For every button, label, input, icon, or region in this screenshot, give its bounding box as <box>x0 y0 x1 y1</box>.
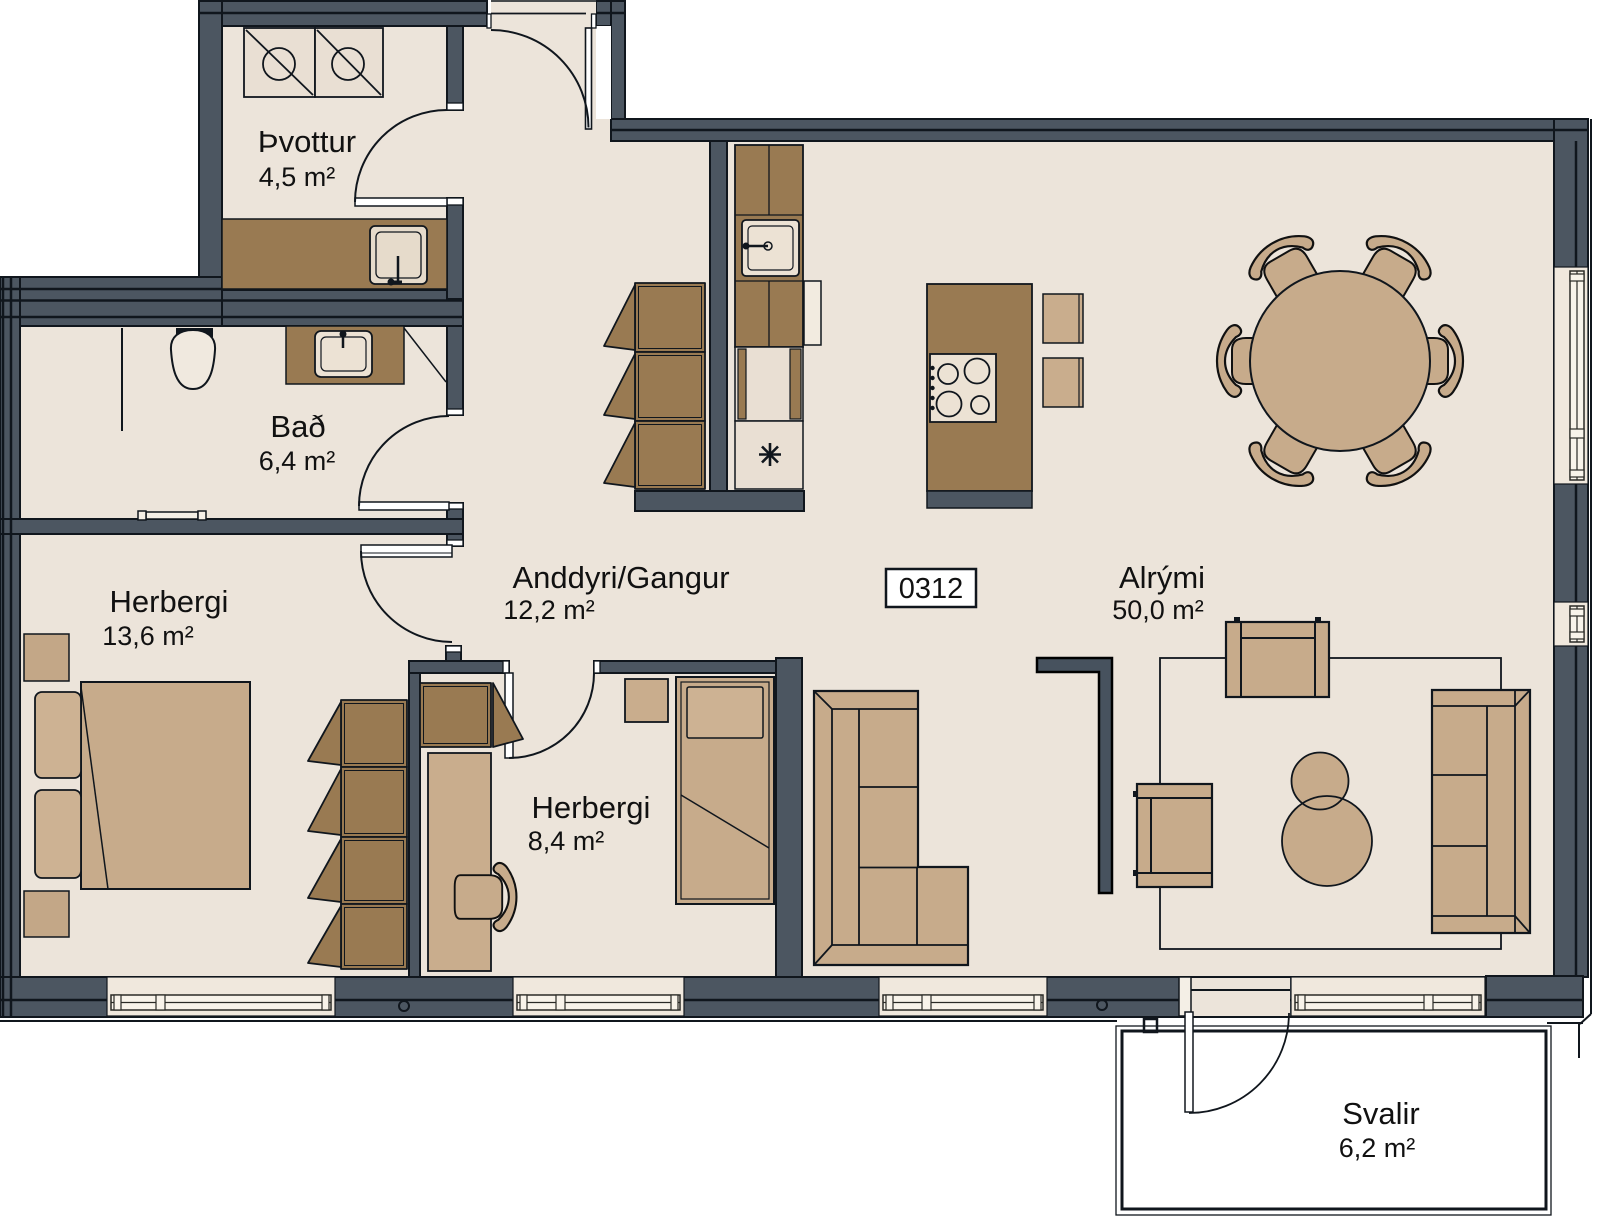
svg-text:8,4 m²: 8,4 m² <box>528 826 605 856</box>
svg-text:50,0 m²: 50,0 m² <box>1112 595 1204 625</box>
svg-text:Herbergi: Herbergi <box>110 584 229 619</box>
svg-text:Bað: Bað <box>270 409 325 444</box>
svg-text:6,4 m²: 6,4 m² <box>259 446 336 476</box>
svg-text:0312: 0312 <box>899 573 964 605</box>
svg-text:Anddyri/Gangur: Anddyri/Gangur <box>512 560 729 595</box>
svg-text:Svalir: Svalir <box>1342 1096 1420 1131</box>
svg-text:Alrými: Alrými <box>1119 560 1205 595</box>
svg-text:6,2 m²: 6,2 m² <box>1339 1133 1416 1163</box>
svg-text:12,2 m²: 12,2 m² <box>503 595 595 625</box>
svg-text:Herbergi: Herbergi <box>532 790 651 825</box>
svg-text:13,6 m²: 13,6 m² <box>102 621 194 651</box>
svg-text:Þvottur: Þvottur <box>258 124 356 159</box>
svg-text:4,5 m²: 4,5 m² <box>259 162 336 192</box>
